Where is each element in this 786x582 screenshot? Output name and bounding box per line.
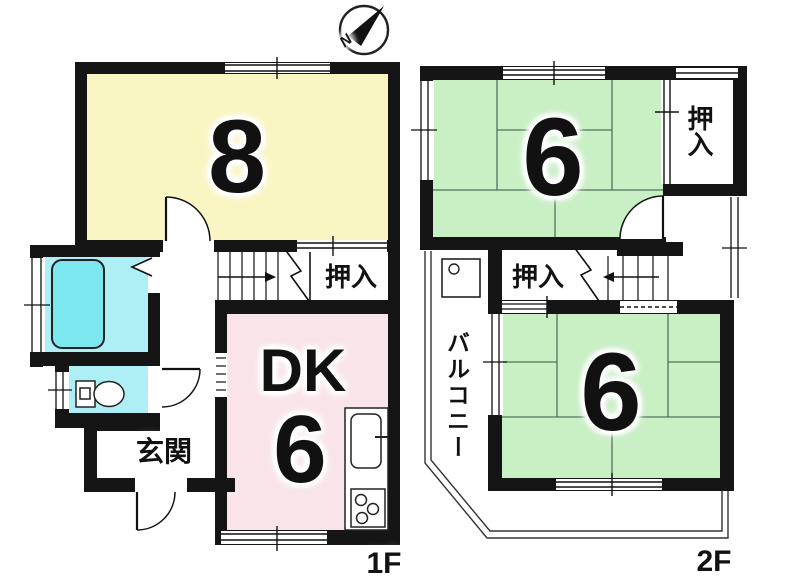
kitchen-counter xyxy=(345,408,388,530)
2f-balcony-label: バルコニー xyxy=(445,331,468,461)
1f-dk-size: 6 xyxy=(273,402,326,498)
kitchen-sink-icon xyxy=(351,414,381,468)
2f-closet-upper-label: 押入 xyxy=(686,105,712,157)
toilet-icon xyxy=(76,381,124,407)
2f-floor-label: 2F xyxy=(696,547,731,577)
floor-plan-drawing xyxy=(0,0,786,582)
1f-stairs xyxy=(218,248,309,301)
bathtub-icon xyxy=(52,260,104,348)
1f-floor-label: 1F xyxy=(366,549,401,579)
2f-lower-room-size: 6 xyxy=(580,338,641,448)
2f-closet-middle-label: 押入 xyxy=(512,264,564,290)
1f-closet-label: 押入 xyxy=(325,264,377,290)
1f-dk-label: DK xyxy=(260,341,347,401)
1f-japanese-room-size: 8 xyxy=(208,105,266,209)
1f-door-toilet xyxy=(162,369,200,407)
1f-entrance-door xyxy=(137,492,175,530)
1f-entrance-label: 玄関 xyxy=(136,438,192,466)
2f-upper-room-size: 6 xyxy=(522,103,583,213)
floor-plan: N 8 押入 DK 6 玄関 1F 6 6 押入 押入 バルコニー 2F xyxy=(0,0,786,582)
washing-machine-icon xyxy=(442,259,480,297)
stove-icon xyxy=(351,489,385,527)
